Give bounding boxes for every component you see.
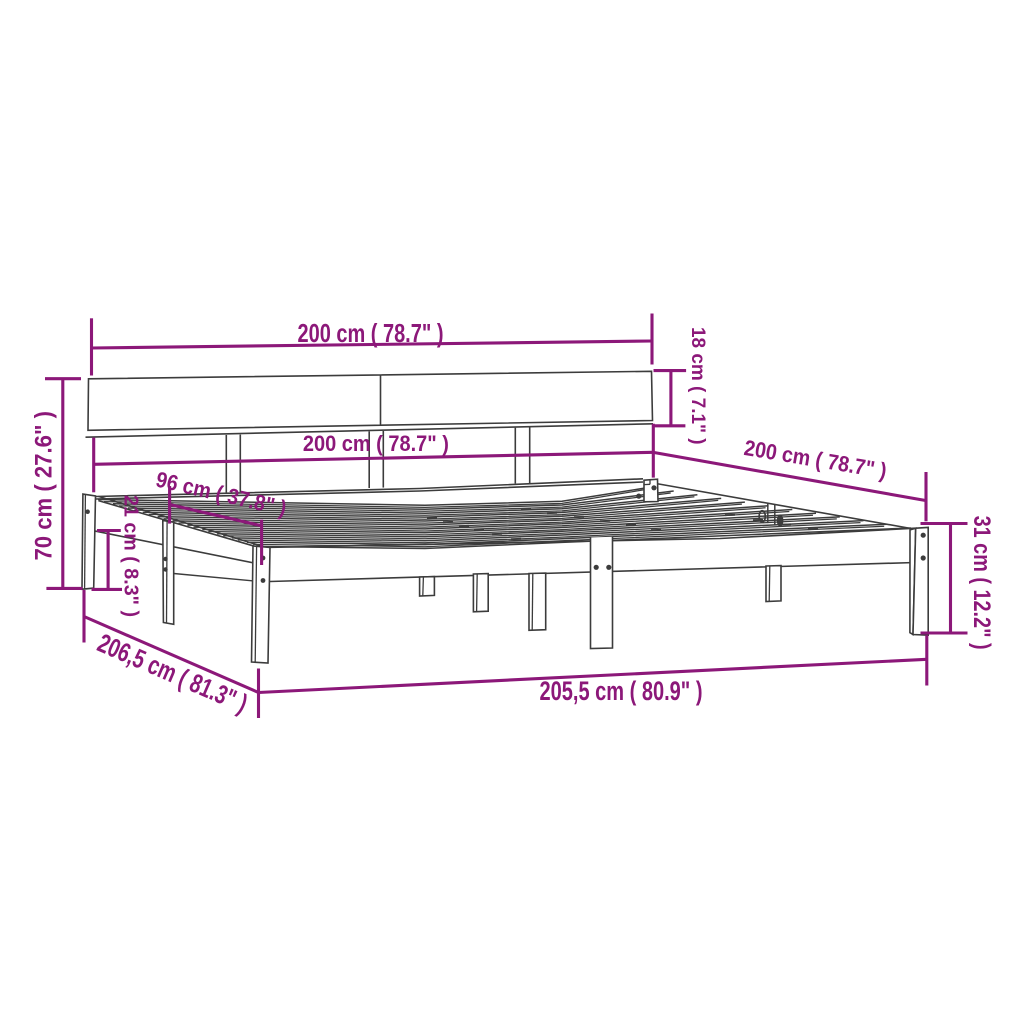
svg-text:70 cm ( 27.6" ): 70 cm ( 27.6" ) [31,411,58,561]
svg-text:200 cm ( 78.7" ): 200 cm ( 78.7" ) [298,318,444,348]
svg-text:31 cm ( 12.2" ): 31 cm ( 12.2" ) [968,516,995,650]
svg-text:21 cm ( 8.3" ): 21 cm ( 8.3" ) [120,495,142,617]
svg-text:205,5 cm ( 80.9" ): 205,5 cm ( 80.9" ) [540,676,703,706]
svg-text:18 cm ( 7.1" ): 18 cm ( 7.1" ) [687,327,708,445]
svg-text:200 cm ( 78.7" ): 200 cm ( 78.7" ) [303,431,449,456]
